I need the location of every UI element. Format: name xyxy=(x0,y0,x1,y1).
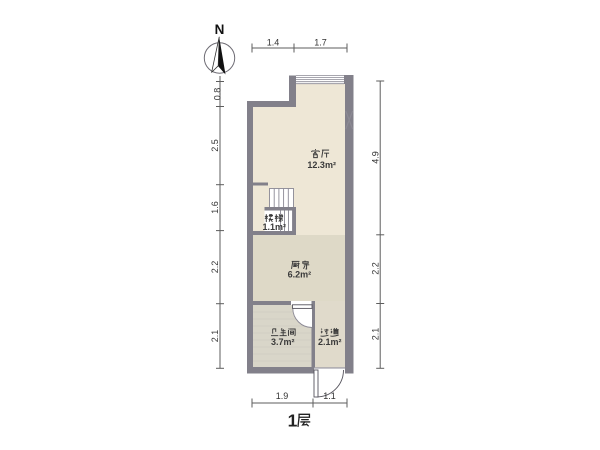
svg-text:2.5: 2.5 xyxy=(210,139,220,152)
svg-text:1.9: 1.9 xyxy=(276,391,289,401)
svg-text:1.1: 1.1 xyxy=(323,391,336,401)
svg-text:0.8: 0.8 xyxy=(212,88,222,101)
svg-text:2.1m²: 2.1m² xyxy=(318,337,342,347)
svg-text:4.9: 4.9 xyxy=(371,151,381,164)
svg-text:2.1: 2.1 xyxy=(210,330,220,343)
svg-text:N: N xyxy=(215,22,225,37)
svg-text:1: 1 xyxy=(288,411,298,431)
svg-text:3.7m²: 3.7m² xyxy=(271,337,295,347)
svg-text:12.3m²: 12.3m² xyxy=(307,160,336,170)
svg-text:1.4: 1.4 xyxy=(267,38,280,48)
svg-text:2.1: 2.1 xyxy=(371,328,381,341)
svg-text:2.2: 2.2 xyxy=(371,262,381,275)
svg-text:2.2: 2.2 xyxy=(210,261,220,274)
svg-text:1.7: 1.7 xyxy=(314,38,327,48)
svg-text:1.1m²: 1.1m² xyxy=(263,222,287,232)
svg-text:6.2m²: 6.2m² xyxy=(288,270,312,280)
svg-text:1.6: 1.6 xyxy=(210,201,220,214)
